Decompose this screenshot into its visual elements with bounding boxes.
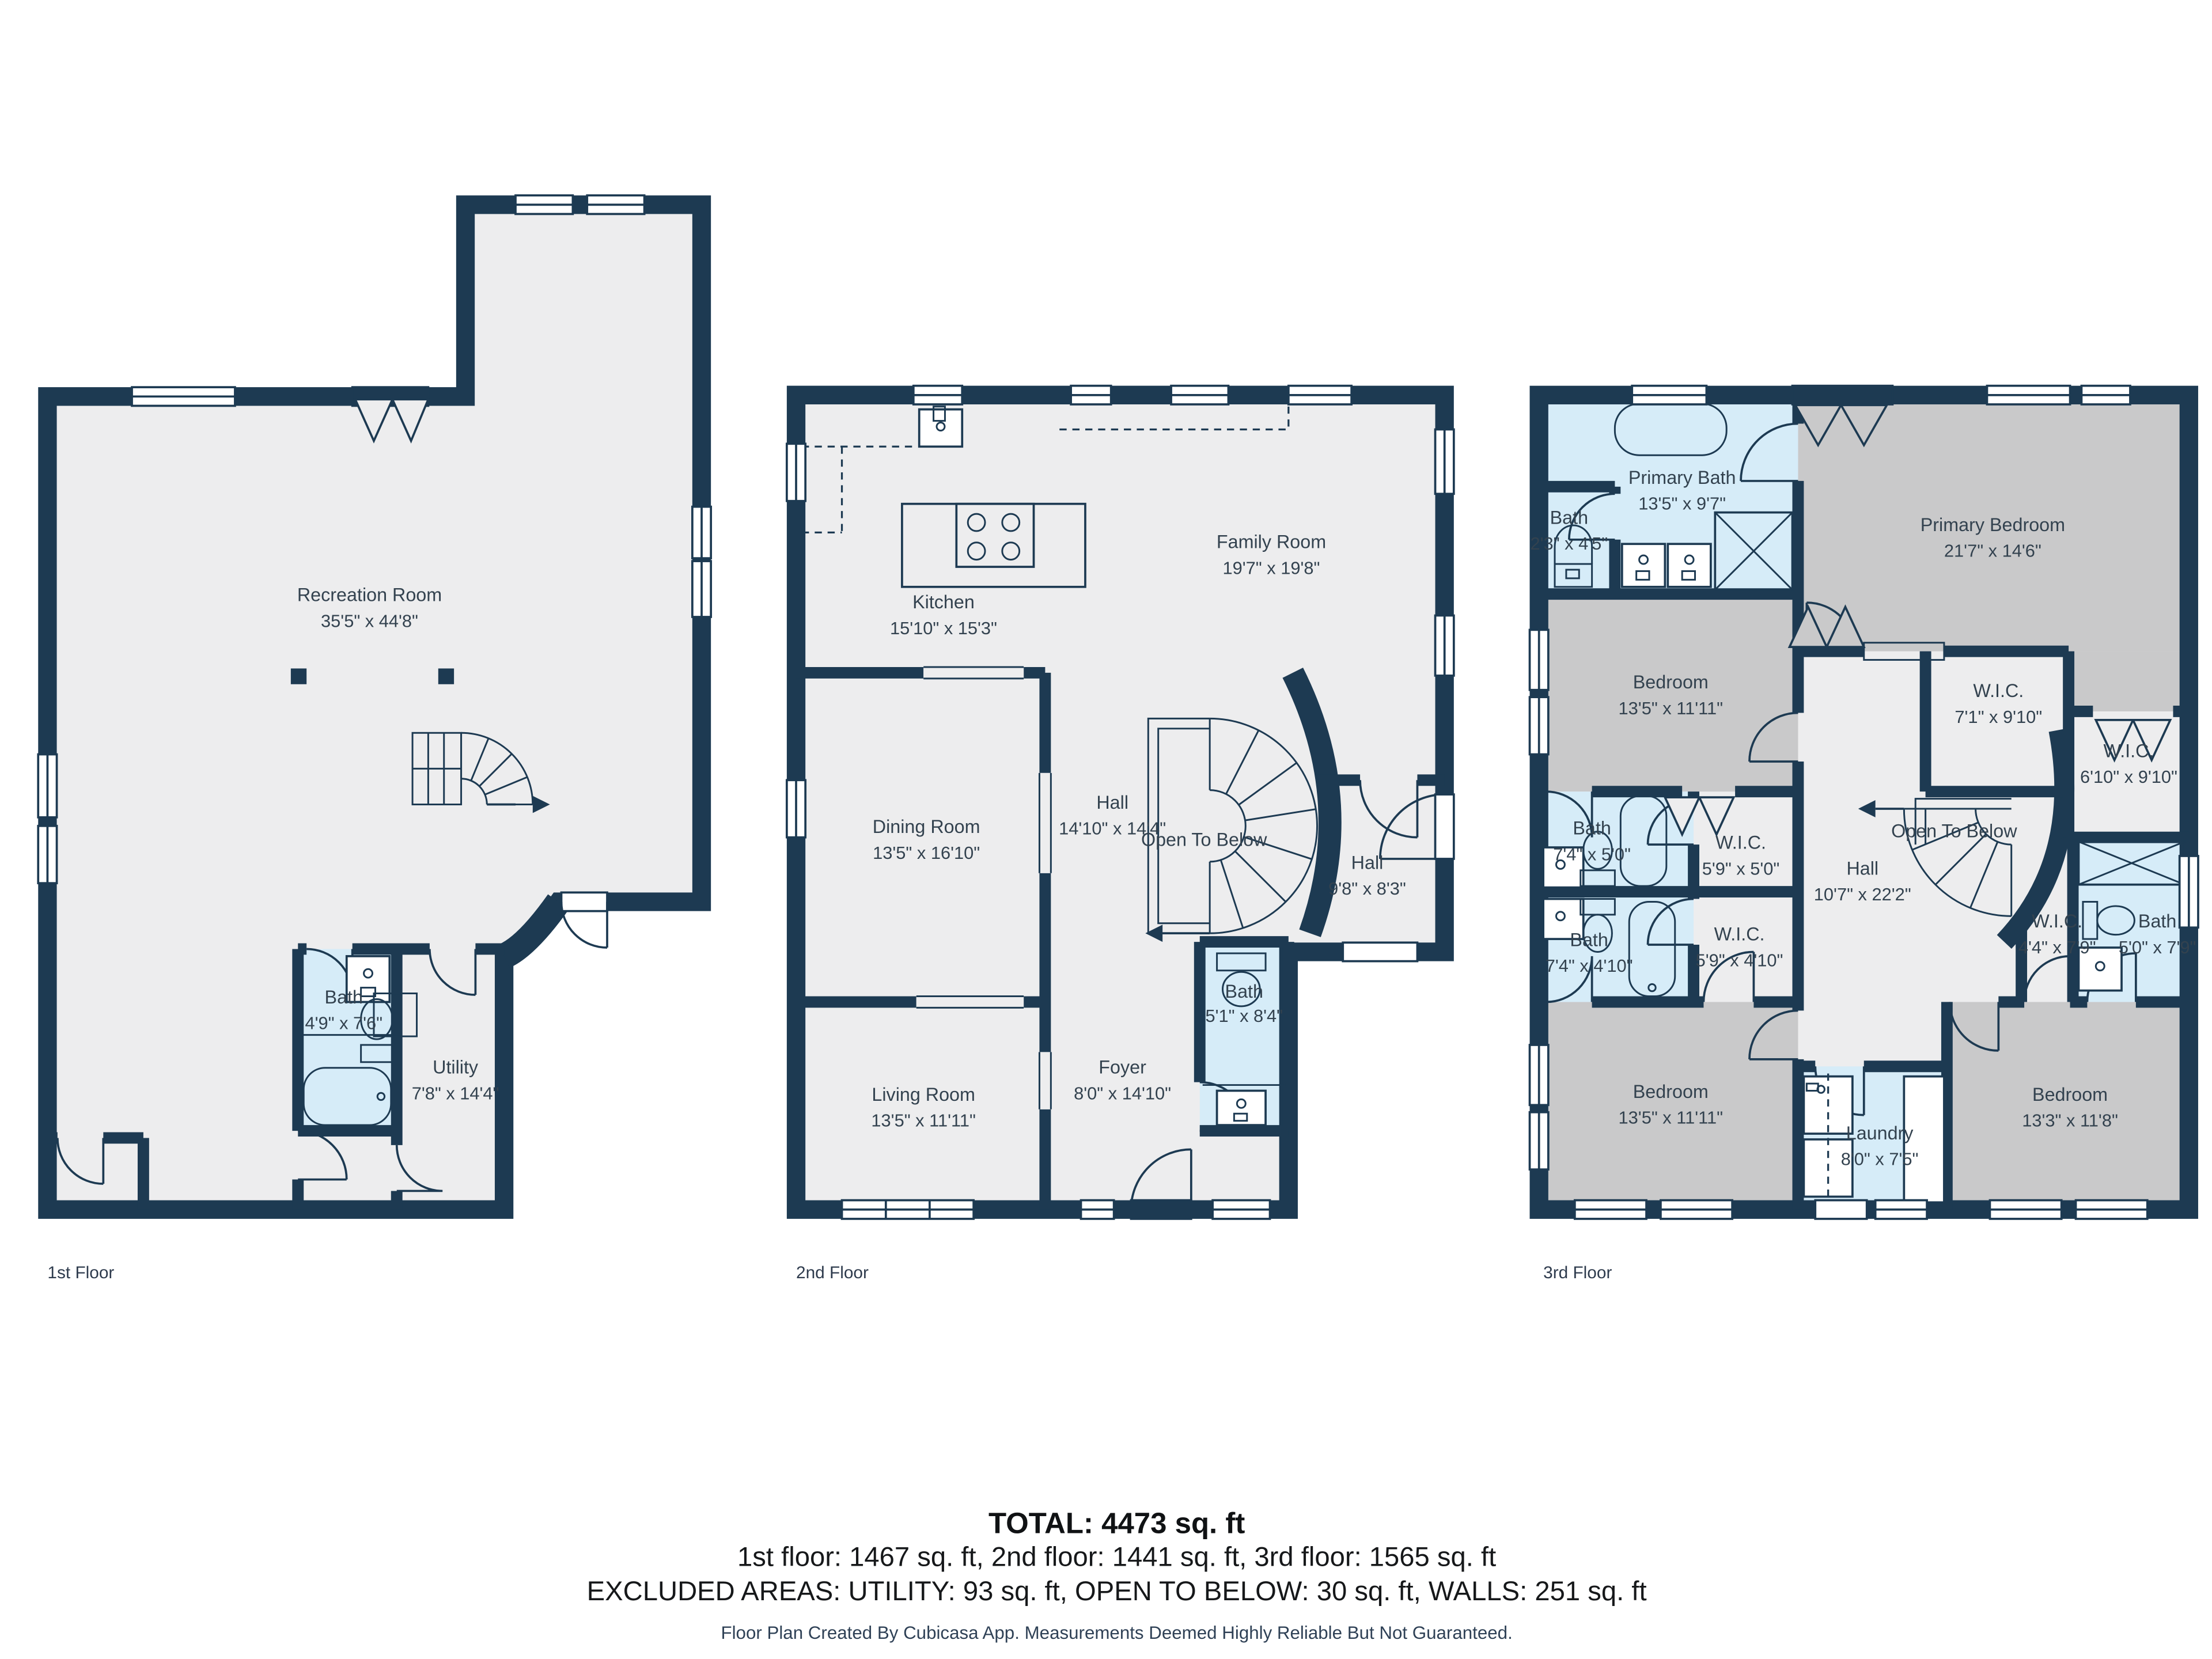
room-name: Utility <box>433 1057 479 1078</box>
room-name: Primary Bedroom <box>1921 514 2065 535</box>
room-dims: 13'5" x 16'10" <box>873 843 980 863</box>
floor-label-2nd: 2nd Floor <box>796 1263 869 1282</box>
room-dims: 35'5" x 44'8" <box>321 611 418 631</box>
room-dims: 4'4" x 7'9" <box>2018 937 2096 957</box>
room-name: Foyer <box>1099 1057 1146 1078</box>
room-name: Primary Bath <box>1628 467 1736 488</box>
room-dims: 13'5" x 11'11" <box>1619 698 1723 718</box>
floorplan-page: Recreation Room 35'5" x 44'8" Bath 4'9" … <box>0 0 2212 1659</box>
room-name: W.I.C. <box>1973 680 2024 701</box>
door-gap <box>1435 794 1454 859</box>
room-name: Bedroom <box>1633 1081 1709 1102</box>
room-name: Laundry <box>1846 1123 1914 1143</box>
room-name: W.I.C. <box>1714 924 1765 945</box>
room-dims: 13'3" x 11'8" <box>2022 1111 2118 1131</box>
room-name: Family Room <box>1217 532 1326 552</box>
room-name: Bath <box>1225 981 1263 1002</box>
excluded-areas-text: EXCLUDED AREAS: UTILITY: 93 sq. ft, OPEN… <box>587 1576 1647 1607</box>
room-name: Bath <box>1573 818 1611 839</box>
room-name: Hall <box>1096 792 1128 813</box>
floorplan-1st-floor: Recreation Room 35'5" x 44'8" Bath 4'9" … <box>38 195 711 1210</box>
column-post <box>438 668 454 684</box>
room-dims: 7'8" x 14'4" <box>412 1083 499 1103</box>
room-dims: 8'0" x 14'10" <box>1074 1083 1171 1103</box>
room-dims: 8'0" x 7'5" <box>1841 1149 1919 1169</box>
room-dims: 19'7" x 19'8" <box>1223 558 1320 578</box>
room-dims: 5'9" x 5'0" <box>1702 858 1780 878</box>
room-name: Bedroom <box>2032 1084 2108 1105</box>
room-name: Hall <box>1846 858 1878 878</box>
room-name: Bath <box>1570 930 1608 950</box>
sink-icon <box>1217 1090 1266 1125</box>
room-name: Living Room <box>872 1084 975 1105</box>
room-dims: 5'0" x 7'9" <box>2119 937 2196 957</box>
room-dims: 13'5" x 9'7" <box>1638 494 1726 514</box>
disclaimer-text: Floor Plan Created By Cubicasa App. Meas… <box>721 1623 1512 1643</box>
room-name: Kitchen <box>912 592 975 612</box>
room-dims: 7'4" x 4'10" <box>1546 956 1633 976</box>
room-dims: 15'10" x 15'3" <box>890 618 997 638</box>
floorplan-3rd-floor: Primary Bath 13'5" x 9'7" Bath 2'3" x 4'… <box>1530 386 2198 1219</box>
room-name: Dining Room <box>873 816 980 837</box>
room-dims: 9'8" x 8'3" <box>1328 878 1406 899</box>
room-name: Bath <box>2138 911 2176 931</box>
room-dims: 7'1" x 9'10" <box>1955 707 2042 727</box>
room-dims: 21'7" x 14'6" <box>1944 541 2041 561</box>
room-dims: 2'3" x 4'5" <box>1531 533 1608 554</box>
door-threshold <box>1343 942 1417 961</box>
room-dims: 10'7" x 22'2" <box>1814 884 1911 904</box>
room-dims: 4'9" x 7'6" <box>305 1013 382 1033</box>
column-post <box>291 668 306 684</box>
room-name: Hall <box>1351 852 1384 873</box>
door-threshold <box>561 892 607 948</box>
room-name: W.I.C. <box>2104 741 2154 762</box>
total-area-text: TOTAL: 4473 sq. ft <box>988 1506 1245 1539</box>
room-name: Bedroom <box>1633 672 1709 692</box>
room-dims: 7'4" x 5'0" <box>1553 844 1631 864</box>
room-name: Open To Below <box>1891 821 2017 842</box>
room-dims: 5'1" x 8'4" <box>1205 1006 1283 1026</box>
room-name: W.I.C. <box>2032 911 2082 931</box>
room-dims: 13'5" x 11'11" <box>871 1111 975 1131</box>
room-name: Bath <box>325 987 363 1007</box>
floor-label-1st: 1st Floor <box>47 1263 114 1282</box>
floor-label-3rd: 3rd Floor <box>1543 1263 1612 1282</box>
room-name: Open To Below <box>1141 829 1267 850</box>
room-dims: 13'5" x 11'11" <box>1619 1108 1723 1128</box>
floorplan-canvas: Recreation Room 35'5" x 44'8" Bath 4'9" … <box>0 0 2212 1659</box>
room-dims: 5'9" x 4'10" <box>1696 950 1783 970</box>
room-name: W.I.C. <box>1715 832 1766 853</box>
room-name: Bath <box>1550 507 1588 528</box>
floor-areas-text: 1st floor: 1467 sq. ft, 2nd floor: 1441 … <box>737 1541 1496 1572</box>
summary-block: TOTAL: 4473 sq. ft 1st floor: 1467 sq. f… <box>587 1506 1647 1643</box>
floorplan-2nd-floor: Kitchen 15'10" x 15'3" Family Room 19'7"… <box>787 386 1454 1219</box>
room-name: Recreation Room <box>297 585 442 605</box>
kitchen-sink-icon <box>919 407 963 447</box>
room-dims: 6'10" x 9'10" <box>2080 767 2177 787</box>
